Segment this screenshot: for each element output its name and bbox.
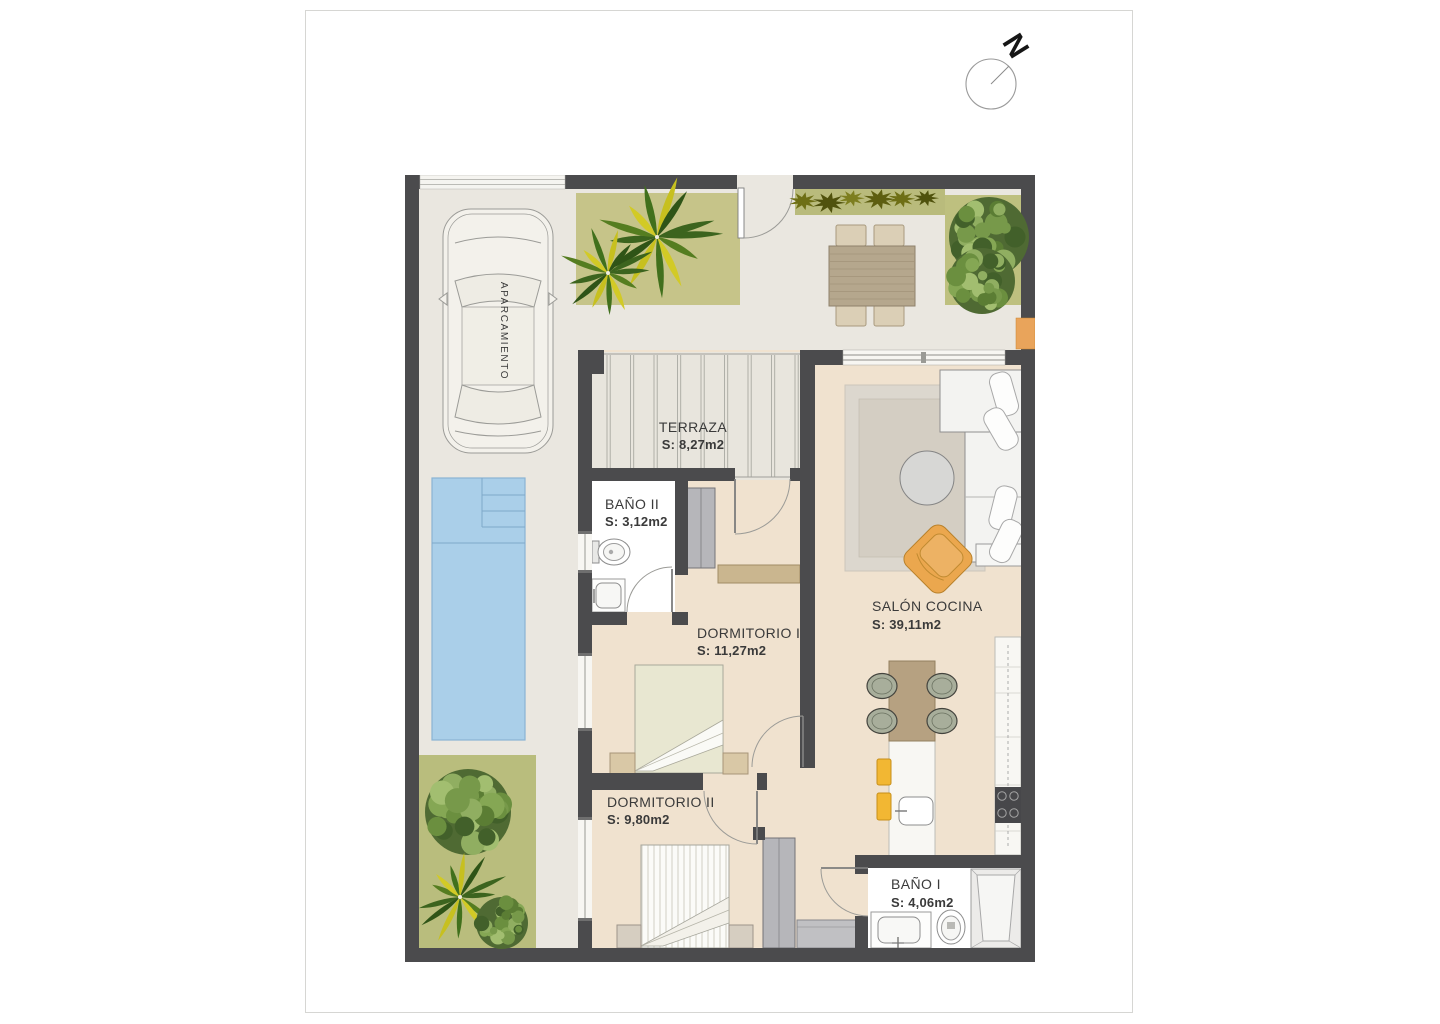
window-bedroom-2 — [578, 817, 592, 921]
nightstand — [729, 925, 753, 948]
living-room-furniture — [845, 370, 1026, 597]
salon-window — [843, 350, 1005, 365]
room-area-terraza: S: 8,27m2 — [662, 437, 725, 452]
dining-table — [829, 246, 915, 306]
room-label-dorm2: DORMITORIO II — [607, 794, 715, 810]
nightstand — [723, 753, 748, 774]
parked-car — [439, 209, 557, 453]
room-label-bano2: BAÑO II — [605, 496, 659, 512]
window-bedroom-1 — [578, 653, 592, 731]
room-area-bano2: S: 3,12m2 — [605, 514, 668, 529]
dining-chair — [874, 225, 904, 246]
coffee-table — [900, 451, 954, 505]
garage-gate — [420, 175, 565, 189]
pool-water — [432, 478, 525, 740]
room-area-salon: S: 39,11m2 — [872, 617, 941, 632]
nightstand — [610, 753, 635, 774]
room-label-bano1: BAÑO I — [891, 876, 941, 892]
dining-chair — [836, 225, 866, 246]
bar-stool — [877, 759, 891, 785]
shower-tray — [977, 875, 1015, 941]
dresser — [718, 565, 800, 583]
floor-plan: APARCAMIENTO — [405, 175, 1035, 962]
room-label-terraza: TERRAZA — [659, 419, 727, 435]
window-bath-2 — [578, 531, 592, 573]
terrace-floor — [590, 352, 800, 480]
room-label-salon: SALÓN COCINA — [872, 598, 983, 614]
cooktop — [995, 787, 1021, 823]
room-label-dorm1: DORMITORIO I — [697, 625, 800, 641]
room-label-parking: APARCAMIENTO — [498, 282, 509, 380]
swimming-pool — [432, 478, 525, 740]
dining-chair — [836, 305, 866, 326]
nightstand — [617, 925, 641, 948]
dining-chair — [874, 305, 904, 326]
bar-stool — [877, 793, 891, 820]
north-compass: N — [945, 16, 1065, 126]
room-area-bano1: S: 4,06m2 — [891, 895, 954, 910]
sink-basin — [878, 917, 920, 943]
compass-north-label: N — [996, 28, 1035, 64]
room-area-dorm2: S: 9,80m2 — [607, 812, 670, 827]
orange-corner-block — [1016, 318, 1035, 349]
room-area-dorm1: S: 11,27m2 — [697, 643, 766, 658]
island-table — [889, 661, 935, 741]
